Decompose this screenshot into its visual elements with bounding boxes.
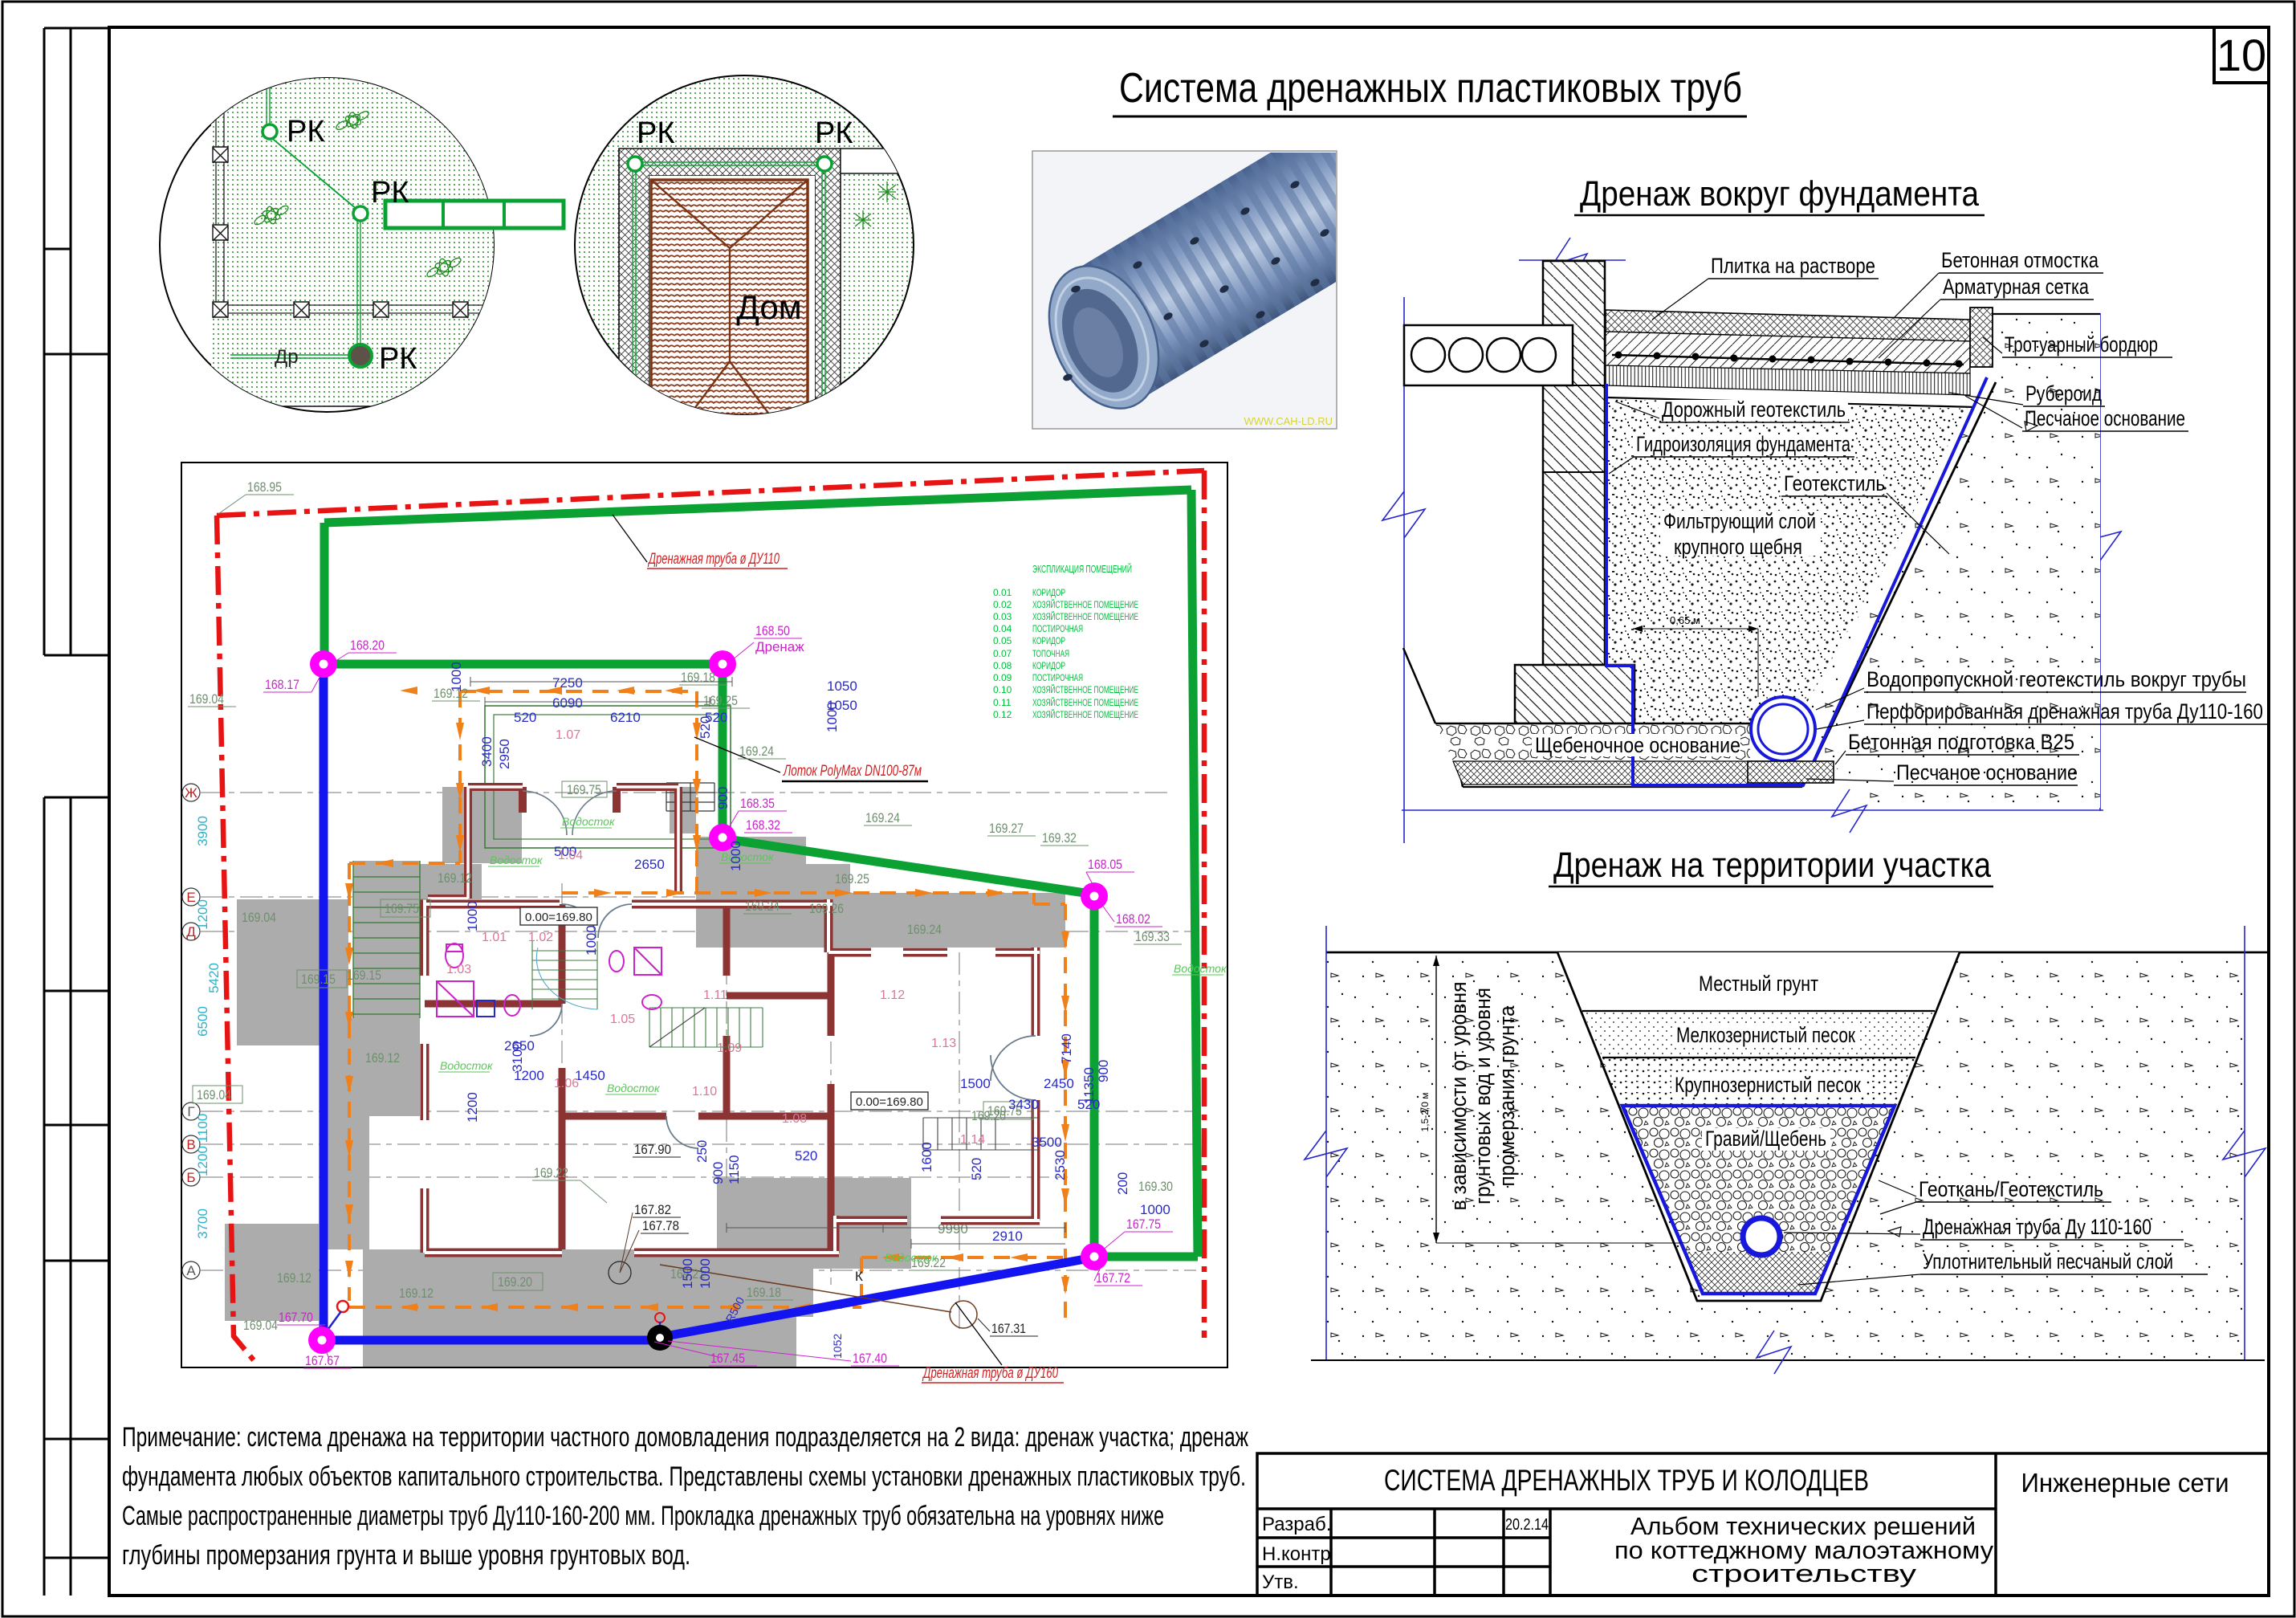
svg-text:Водопропускной геотекстиль вок: Водопропускной геотекстиль вокруг трубы (1867, 667, 2246, 691)
svg-text:169.04: 169.04 (189, 691, 224, 707)
svg-text:Геотекстиль: Геотекстиль (1784, 471, 1885, 495)
svg-text:Дренажная труба ø ДУ160: Дренажная труба ø ДУ160 (922, 1365, 1059, 1382)
svg-text:1500: 1500 (960, 1076, 991, 1091)
svg-text:169.12: 169.12 (399, 1286, 434, 1301)
svg-text:WWW.CAH-LD.RU: WWW.CAH-LD.RU (1244, 415, 1333, 427)
svg-text:Песчаное основание: Песчаное основание (1896, 760, 2078, 785)
svg-text:1100: 1100 (195, 1114, 210, 1143)
svg-text:2950: 2950 (497, 739, 512, 769)
svg-text:167.90: 167.90 (634, 1142, 671, 1157)
svg-text:169.22: 169.22 (534, 1165, 568, 1180)
svg-text:0.08: 0.08 (993, 660, 1012, 671)
svg-text:Крупнозернистый песок: Крупнозернистый песок (1675, 1073, 1861, 1097)
svg-text:Дренаж вокруг фундамента: Дренаж вокруг фундамента (1580, 174, 1979, 214)
svg-text:1.01: 1.01 (482, 931, 507, 944)
svg-text:ХОЗЯЙСТВЕННОЕ ПОМЕЩЕНИЕ: ХОЗЯЙСТВЕННОЕ ПОМЕЩЕНИЕ (1032, 598, 1138, 610)
svg-text:169.12: 169.12 (438, 870, 472, 886)
svg-text:1.12: 1.12 (880, 988, 905, 1002)
svg-text:1.02: 1.02 (528, 931, 553, 944)
svg-text:1000: 1000 (728, 841, 743, 871)
svg-text:Н.контр: Н.контр (1262, 1543, 1331, 1565)
svg-text:0.01: 0.01 (993, 587, 1012, 598)
svg-text:169.04: 169.04 (242, 910, 276, 925)
svg-text:2650: 2650 (634, 857, 665, 872)
svg-text:Уплотнительный песчаный слой: Уплотнительный песчаный слой (1923, 1249, 2173, 1274)
svg-text:Дорожный геотекстиль: Дорожный геотекстиль (1662, 397, 1846, 422)
svg-text:в зависимости от уровня: в зависимости от уровня (1447, 982, 1471, 1211)
svg-text:Самые распространенные диаметр: Самые распространенные диаметры труб Ду1… (122, 1501, 1164, 1531)
svg-text:Ж: Ж (185, 785, 197, 801)
svg-text:0,65 м: 0,65 м (1670, 614, 1700, 626)
svg-text:0.05: 0.05 (993, 635, 1012, 646)
svg-text:1600: 1600 (919, 1142, 934, 1172)
svg-text:1.14: 1.14 (960, 1133, 985, 1147)
svg-text:2530: 2530 (1052, 1150, 1068, 1180)
svg-text:ПОСТИРОЧНАЯ: ПОСТИРОЧНАЯ (1032, 623, 1083, 634)
svg-text:Дренаж на территории участка: Дренаж на территории участка (1553, 846, 1991, 885)
svg-text:168.02: 168.02 (1116, 911, 1150, 927)
svg-text:1050: 1050 (827, 679, 857, 694)
svg-text:0.09: 0.09 (993, 672, 1012, 683)
svg-text:Водосток: Водосток (490, 854, 543, 866)
svg-text:0.02: 0.02 (993, 599, 1012, 610)
svg-text:грунтовых вод и уровня: грунтовых вод и уровня (1471, 988, 1495, 1204)
svg-text:168.50: 168.50 (755, 623, 790, 638)
svg-text:Арматурная сетка: Арматурная сетка (1943, 275, 2090, 299)
svg-text:Дом: Дом (736, 288, 801, 326)
svg-text:900: 900 (710, 1162, 726, 1184)
svg-text:169.27: 169.27 (989, 821, 1024, 836)
svg-text:7140: 7140 (1059, 1033, 1074, 1064)
svg-text:2650: 2650 (504, 1038, 535, 1054)
svg-text:А: А (186, 1263, 196, 1278)
svg-text:ХОЗЯЙСТВЕННОЕ ПОМЕЩЕНИЕ: ХОЗЯЙСТВЕННОЕ ПОМЕЩЕНИЕ (1032, 610, 1138, 622)
svg-text:169.26: 169.26 (809, 901, 844, 916)
svg-text:1000: 1000 (584, 925, 599, 956)
svg-text:169.30: 169.30 (1138, 1179, 1173, 1194)
svg-text:169.12: 169.12 (277, 1270, 311, 1286)
svg-text:промерзания грунта: промерзания грунта (1495, 1005, 1519, 1187)
svg-text:1.09: 1.09 (717, 1041, 742, 1055)
svg-text:3700: 3700 (195, 1208, 210, 1239)
svg-text:0.12: 0.12 (993, 709, 1012, 720)
svg-text:1.06: 1.06 (554, 1077, 579, 1090)
svg-text:3430: 3430 (1008, 1097, 1039, 1112)
svg-text:0.03: 0.03 (993, 611, 1012, 622)
svg-text:Гравий/Щебень: Гравий/Щебень (1705, 1127, 1826, 1151)
svg-text:Водосток: Водосток (562, 815, 616, 828)
svg-text:167.45: 167.45 (710, 1351, 745, 1366)
svg-text:2910: 2910 (992, 1229, 1023, 1244)
svg-text:250: 250 (694, 1140, 710, 1163)
svg-text:Система дренажных пластиковых: Система дренажных пластиковых труб (1119, 65, 1742, 112)
svg-text:РК: РК (287, 115, 324, 149)
svg-text:Инженерные сети: Инженерные сети (2021, 1468, 2229, 1498)
svg-text:1.08: 1.08 (782, 1112, 807, 1126)
svg-text:Дренаж: Дренаж (755, 639, 804, 654)
svg-text:Гидроизоляция фундамента: Гидроизоляция фундамента (1636, 432, 1851, 456)
svg-text:В: В (186, 1137, 195, 1152)
svg-text:Перфорированная дренажная труб: Перфорированная дренажная труба Ду110-16… (1867, 699, 2263, 723)
svg-text:20.2.14: 20.2.14 (1505, 1516, 1549, 1534)
svg-text:КОРИДОР: КОРИДОР (1032, 660, 1065, 671)
svg-text:169.24: 169.24 (745, 899, 780, 914)
svg-text:0.00=169.80: 0.00=169.80 (525, 911, 592, 924)
svg-text:1.13: 1.13 (931, 1037, 956, 1050)
svg-text:7250: 7250 (552, 675, 583, 691)
svg-text:глубины промерзания грунта и в: глубины промерзания грунта и выше уровня… (122, 1540, 690, 1571)
svg-text:900: 900 (1096, 1060, 1111, 1082)
svg-text:169.04: 169.04 (243, 1318, 278, 1333)
svg-text:РК: РК (379, 342, 417, 376)
svg-text:РК: РК (815, 116, 853, 150)
svg-text:6500: 6500 (195, 1006, 210, 1037)
svg-text:520: 520 (698, 716, 713, 739)
svg-text:1200: 1200 (195, 1146, 210, 1176)
svg-text:1450: 1450 (575, 1068, 605, 1083)
svg-text:Тротуарный бордюр: Тротуарный бордюр (2005, 332, 2158, 357)
svg-text:5420: 5420 (206, 963, 222, 993)
svg-text:169.12: 169.12 (365, 1050, 400, 1066)
svg-text:Г: Г (187, 1104, 194, 1119)
svg-text:1.03: 1.03 (446, 963, 471, 976)
svg-text:Местный грунт: Местный грунт (1699, 972, 1818, 996)
svg-text:Разраб.: Разраб. (1262, 1514, 1331, 1535)
svg-text:520: 520 (514, 710, 536, 725)
svg-text:1150: 1150 (727, 1155, 742, 1184)
svg-text:168.20: 168.20 (350, 638, 385, 653)
svg-text:ХОЗЯЙСТВЕННОЕ ПОМЕЩЕНИЕ: ХОЗЯЙСТВЕННОЕ ПОМЕЩЕНИЕ (1032, 708, 1138, 720)
svg-text:ЭКСПЛИКАЦИЯ ПОМЕЩЕНИЙ: ЭКСПЛИКАЦИЯ ПОМЕЩЕНИЙ (1032, 563, 1132, 575)
svg-text:1.10: 1.10 (692, 1085, 717, 1098)
svg-text:1200: 1200 (195, 899, 210, 930)
svg-text:169.25: 169.25 (703, 693, 738, 708)
svg-text:1000: 1000 (449, 662, 464, 692)
svg-text:Геоткань/Геотекстиль: Геоткань/Геотекстиль (1919, 1177, 2103, 1201)
svg-text:1.05: 1.05 (610, 1013, 635, 1026)
svg-text:КОРИДОР: КОРИДОР (1032, 635, 1065, 646)
svg-text:ХОЗЯЙСТВЕННОЕ ПОМЕЩЕНИЕ: ХОЗЯЙСТВЕННОЕ ПОМЕЩЕНИЕ (1032, 696, 1138, 708)
svg-text:3900: 3900 (195, 816, 210, 846)
svg-text:КОРИДОР: КОРИДОР (1032, 587, 1065, 598)
svg-text:1000: 1000 (698, 1258, 713, 1289)
svg-text:169.18: 169.18 (747, 1285, 781, 1300)
svg-text:Дренажная труба ø ДУ110: Дренажная труба ø ДУ110 (648, 551, 780, 568)
svg-text:169.04: 169.04 (197, 1087, 231, 1102)
svg-text:169.32: 169.32 (1042, 830, 1077, 846)
svg-text:167.70: 167.70 (279, 1310, 313, 1325)
svg-text:Бетонная подготовка В25: Бетонная подготовка В25 (1848, 730, 2074, 754)
svg-text:1.11: 1.11 (703, 988, 727, 1002)
svg-text:520: 520 (969, 1158, 984, 1180)
svg-text:Водосток: Водосток (440, 1059, 494, 1072)
svg-text:169.24: 169.24 (739, 744, 774, 759)
svg-text:169.24: 169.24 (865, 810, 900, 825)
svg-text:СИСТЕМА ДРЕНАЖНЫХ ТРУБ И КОЛОД: СИСТЕМА ДРЕНАЖНЫХ ТРУБ И КОЛОДЦЕВ (1384, 1464, 1869, 1497)
svg-text:3500: 3500 (1032, 1135, 1062, 1150)
svg-text:3400: 3400 (479, 736, 495, 767)
svg-text:Бетонная отмостка: Бетонная отмостка (1941, 248, 2099, 272)
svg-text:6210: 6210 (610, 710, 641, 725)
svg-text:фундамента любых объектов капи: фундамента любых объектов капитального с… (122, 1461, 1246, 1492)
svg-text:Б: Б (186, 1170, 195, 1185)
svg-text:строительству: строительству (1691, 1559, 1917, 1587)
svg-text:1000: 1000 (1140, 1202, 1170, 1217)
svg-text:Е: Е (186, 890, 195, 905)
svg-text:ХОЗЯЙСТВЕННОЕ ПОМЕЩЕНИЕ: ХОЗЯЙСТВЕННОЕ ПОМЕЩЕНИЕ (1032, 683, 1138, 695)
svg-text:Рубероид: Рубероид (2025, 381, 2102, 406)
svg-text:167.31: 167.31 (991, 1321, 1026, 1336)
svg-text:1200: 1200 (465, 1092, 480, 1123)
svg-text:1.04: 1.04 (558, 849, 583, 862)
svg-text:Щебеночное основание: Щебеночное основание (1535, 733, 1740, 757)
svg-text:168.17: 168.17 (265, 677, 299, 692)
svg-text:Водосток: Водосток (607, 1082, 661, 1094)
svg-text:167.82: 167.82 (634, 1202, 671, 1217)
svg-text:Водосток: Водосток (1174, 962, 1227, 975)
svg-text:168.32: 168.32 (746, 817, 780, 833)
svg-text:Водосток: Водосток (885, 1251, 938, 1264)
svg-text:168.35: 168.35 (740, 796, 775, 811)
svg-text:169.15: 169.15 (301, 972, 336, 987)
svg-text:169.15: 169.15 (347, 968, 381, 983)
svg-text:1,5-2,0 м: 1,5-2,0 м (1419, 1093, 1431, 1132)
svg-text:крупного щебня: крупного щебня (1674, 535, 1802, 559)
svg-text:167.67: 167.67 (305, 1353, 340, 1368)
svg-text:169.75: 169.75 (567, 782, 601, 797)
svg-text:167.75: 167.75 (1126, 1217, 1161, 1232)
svg-text:1.07: 1.07 (556, 728, 580, 742)
svg-text:169.33: 169.33 (1135, 929, 1170, 944)
svg-text:ТОПОЧНАЯ: ТОПОЧНАЯ (1032, 648, 1069, 659)
svg-text:Примечание: система дренажа на: Примечание: система дренажа на территори… (122, 1422, 1248, 1453)
svg-text:0.07: 0.07 (993, 648, 1012, 659)
svg-text:Дренажная труба Ду 110-160: Дренажная труба Ду 110-160 (1923, 1215, 2151, 1239)
svg-text:1000: 1000 (465, 901, 480, 931)
svg-text:Утв.: Утв. (1262, 1571, 1299, 1593)
svg-text:167.40: 167.40 (853, 1351, 887, 1366)
svg-text:0.00=169.80: 0.00=169.80 (856, 1095, 923, 1109)
svg-text:169.24: 169.24 (907, 922, 942, 937)
svg-text:Мелкозернистый песок: Мелкозернистый песок (1676, 1023, 1855, 1047)
svg-text:167.72: 167.72 (1096, 1270, 1130, 1286)
svg-text:169.18: 169.18 (681, 670, 715, 685)
svg-text:167.78: 167.78 (642, 1218, 679, 1233)
svg-text:Фильтрующий слой: Фильтрующий слой (1663, 509, 1816, 533)
svg-text:6090: 6090 (552, 695, 583, 711)
svg-text:0.04: 0.04 (993, 623, 1012, 634)
svg-text:0.10: 0.10 (993, 684, 1012, 695)
svg-text:К: К (855, 1269, 863, 1284)
svg-text:1052: 1052 (831, 1334, 844, 1359)
svg-text:200: 200 (1115, 1172, 1130, 1195)
svg-text:Лоток PolyMax DN100-87м: Лоток PolyMax DN100-87м (783, 763, 922, 780)
svg-text:169.75: 169.75 (385, 901, 419, 916)
svg-text:169.20: 169.20 (498, 1274, 532, 1290)
svg-text:169.25: 169.25 (835, 871, 869, 886)
svg-text:0.11: 0.11 (993, 697, 1012, 708)
svg-text:РК: РК (371, 176, 409, 210)
svg-text:Песчаное основание: Песчаное основание (2025, 406, 2185, 430)
svg-text:РК: РК (637, 116, 674, 150)
svg-text:9990: 9990 (938, 1221, 968, 1237)
svg-text:520: 520 (795, 1148, 817, 1164)
svg-text:Плитка на растворе: Плитка на растворе (1711, 254, 1875, 278)
svg-text:ПОСТИРОЧНАЯ: ПОСТИРОЧНАЯ (1032, 672, 1083, 683)
svg-text:900: 900 (715, 787, 731, 809)
svg-text:1500: 1500 (680, 1258, 695, 1289)
svg-text:10: 10 (2217, 30, 2266, 80)
svg-text:1000: 1000 (824, 702, 840, 732)
svg-text:2450: 2450 (1044, 1076, 1074, 1091)
svg-text:Др: Др (275, 346, 299, 368)
svg-text:11350: 11350 (1081, 1067, 1097, 1104)
svg-text:168.95: 168.95 (247, 479, 282, 495)
svg-text:168.05: 168.05 (1088, 857, 1122, 872)
